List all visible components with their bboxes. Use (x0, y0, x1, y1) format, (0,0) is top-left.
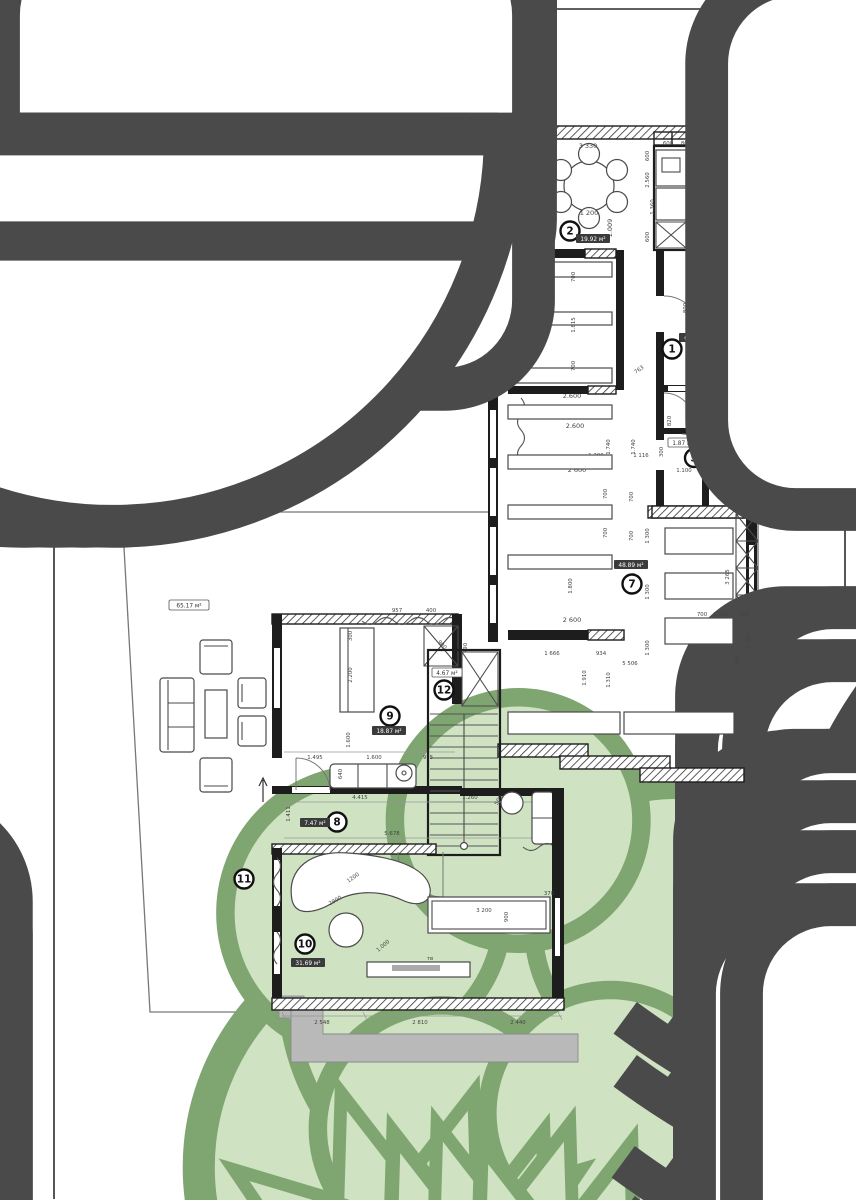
svg-text:700: 700 (603, 488, 609, 499)
svg-text:1.360: 1.360 (650, 199, 656, 215)
svg-text:2 600: 2 600 (563, 616, 582, 624)
svg-text:2.200: 2.200 (348, 667, 354, 683)
svg-text:640: 640 (338, 768, 344, 779)
area-badge-7: 48.89 м² (614, 560, 648, 569)
svg-text:2.600: 2.600 (566, 422, 585, 430)
svg-text:65.17 м²: 65.17 м² (176, 603, 201, 610)
kitchen-units: 600 800 2.560 1.360 600 600 (645, 132, 692, 250)
room-number-9: 9 (381, 707, 400, 726)
svg-text:700: 700 (571, 360, 577, 371)
svg-text:300: 300 (348, 630, 354, 641)
svg-text:2: 2 (566, 226, 573, 238)
svg-text:31.69 м²: 31.69 м² (295, 960, 320, 967)
svg-text:5 506: 5 506 (622, 661, 638, 667)
area-badge-9: 18.87 м² (372, 726, 406, 735)
svg-text:1 666: 1 666 (544, 651, 560, 657)
svg-text:48.89 м²: 48.89 м² (618, 562, 643, 569)
svg-text:1 200: 1 200 (580, 209, 599, 217)
svg-text:700: 700 (629, 530, 635, 541)
room-number-7: 7 (623, 575, 642, 594)
svg-text:7.47 м²: 7.47 м² (304, 820, 325, 827)
svg-text:700: 700 (603, 527, 609, 538)
svg-text:3 330: 3 330 (579, 142, 598, 150)
svg-text:4.415: 4.415 (352, 795, 367, 801)
svg-text:370: 370 (544, 891, 555, 897)
svg-text:1.600: 1.600 (346, 732, 352, 748)
svg-text:900: 900 (504, 911, 510, 922)
svg-text:1 300: 1 300 (645, 640, 651, 656)
svg-text:1.600: 1.600 (366, 755, 382, 761)
room-number-8: 8 (328, 813, 347, 832)
svg-text:12: 12 (437, 685, 452, 697)
area-badge-2: 19.92 м² (576, 234, 610, 243)
svg-text:1 300: 1 300 (645, 528, 651, 544)
svg-text:9: 9 (386, 711, 393, 723)
svg-text:1.310: 1.310 (606, 672, 612, 688)
svg-text:11: 11 (237, 874, 252, 886)
north-arrow-icon (259, 778, 267, 802)
room-number-11: 11 (235, 870, 254, 889)
svg-text:1 200: 1 200 (713, 612, 729, 618)
svg-text:1.495: 1.495 (307, 755, 322, 761)
svg-text:4.67 м²: 4.67 м² (436, 670, 457, 677)
svg-text:18.87 м²: 18.87 м² (376, 728, 401, 735)
area-badge-terrace: 65.17 м² (169, 600, 209, 610)
wall-office1-top (585, 249, 616, 258)
area-badge-10: 31.69 м² (291, 958, 325, 967)
room-number-12: 12 (435, 681, 454, 700)
svg-text:3 265: 3 265 (725, 569, 731, 584)
svg-text:1.910: 1.910 (582, 670, 588, 686)
floor-plan-drawing: 65.17 м² 11 (0, 0, 856, 1200)
svg-text:10: 10 (298, 939, 313, 951)
svg-text:2 810: 2 810 (412, 1020, 428, 1026)
svg-text:8: 8 (333, 817, 340, 829)
floor-plan-page: 65.17 м² 11 (0, 0, 856, 1200)
svg-text:2 548: 2 548 (314, 1020, 330, 1026)
svg-text:763: 763 (633, 365, 645, 376)
svg-text:1.815: 1.815 (571, 317, 577, 332)
outdoor-lounge-set (160, 640, 266, 792)
svg-text:700: 700 (697, 612, 708, 618)
svg-text:3 200: 3 200 (476, 908, 492, 914)
svg-text:700: 700 (629, 491, 635, 502)
svg-text:300: 300 (659, 446, 665, 457)
svg-text:600: 600 (645, 231, 651, 242)
svg-text:2.560: 2.560 (645, 172, 651, 188)
svg-text:957: 957 (392, 608, 402, 614)
tv-label: тв (427, 956, 433, 962)
wall-office1-right (616, 250, 624, 390)
svg-text:400: 400 (426, 608, 437, 614)
svg-text:7: 7 (628, 579, 635, 591)
area-badge-8: 7.47 м² (300, 818, 330, 827)
svg-text:1.740: 1.740 (631, 439, 637, 455)
area-badge-12: 4.67 м² (432, 668, 462, 677)
svg-text:416: 416 (739, 612, 750, 618)
svg-text:1.390: 1.390 (746, 633, 752, 649)
svg-text:1: 1 (668, 344, 675, 356)
svg-text:2 440: 2 440 (510, 1020, 526, 1026)
svg-text:820: 820 (667, 415, 673, 426)
svg-text:1.740: 1.740 (606, 439, 612, 455)
svg-text:1.411: 1.411 (286, 806, 292, 821)
svg-text:1.800: 1.800 (568, 578, 574, 594)
svg-text:1 300: 1 300 (645, 584, 651, 600)
svg-text:600: 600 (645, 150, 651, 161)
svg-text:300: 300 (735, 654, 741, 665)
svg-text:1.100: 1.100 (676, 468, 692, 474)
svg-text:600: 600 (663, 141, 674, 147)
room-number-1: 1 (663, 340, 682, 359)
svg-text:5.678: 5.678 (384, 831, 400, 837)
svg-text:700: 700 (571, 271, 577, 282)
svg-text:19.92 м²: 19.92 м² (580, 236, 605, 243)
svg-text:934: 934 (596, 651, 607, 657)
room-number-10: 10 (296, 935, 315, 954)
